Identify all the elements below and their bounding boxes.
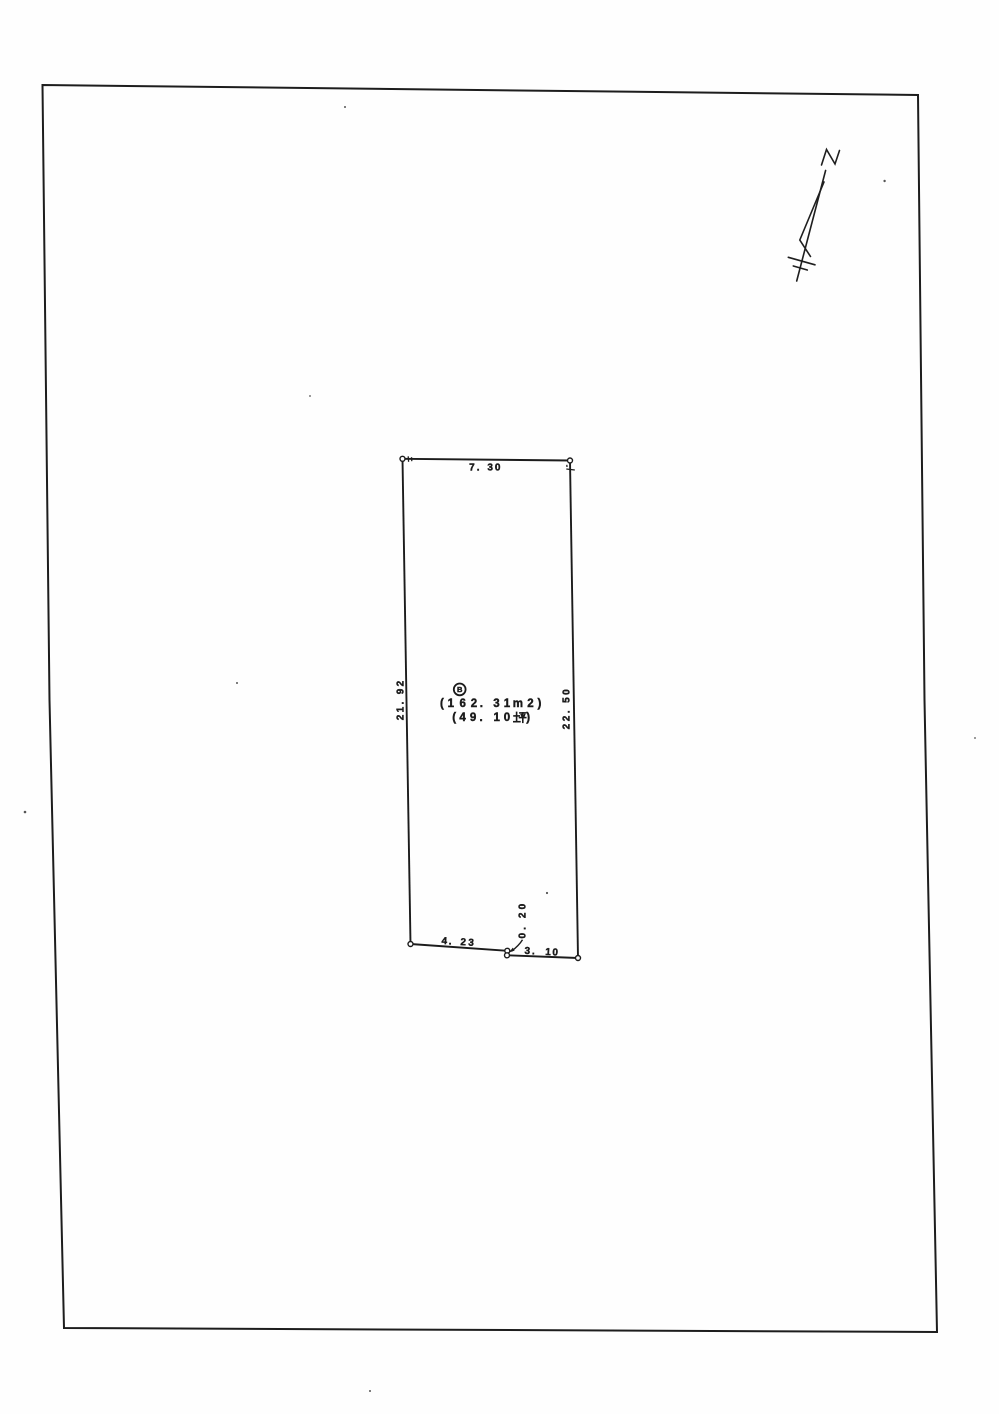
svg-text:B: B — [457, 685, 463, 694]
svg-text:): ) — [526, 712, 530, 724]
svg-text:22. 50: 22. 50 — [562, 687, 573, 730]
svg-text:21. 92: 21. 92 — [395, 679, 406, 721]
svg-text:0. 20: 0. 20 — [518, 901, 529, 939]
